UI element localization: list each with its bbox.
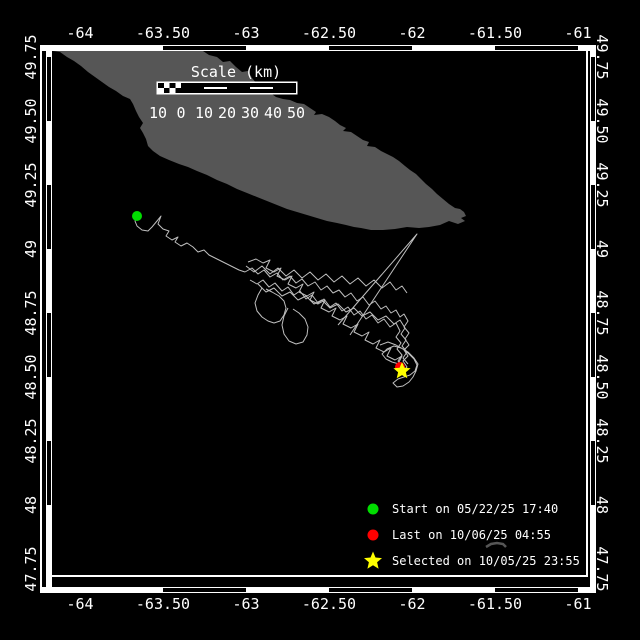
lat-tick-label-right: 49.25	[593, 162, 611, 207]
scalebar-segment	[181, 83, 204, 93]
start-position-marker[interactable]	[132, 211, 142, 221]
scalebar-checker-cell	[158, 88, 164, 93]
lat-tick-label-left: 48.50	[22, 354, 40, 399]
lat-tick-label-right: 49.50	[593, 98, 611, 143]
lon-tick-label-top: -64	[66, 24, 93, 42]
lat-tick-label-right: 49.75	[593, 34, 611, 79]
legend-label: Selected on 10/05/25 23:55	[392, 554, 580, 568]
track-line[interactable]	[255, 288, 286, 323]
lat-tick-label-left: 48	[22, 496, 40, 514]
lat-tick-label-right: 49	[593, 240, 611, 258]
lon-tick-label-top: -61	[564, 24, 591, 42]
scalebar-segment	[273, 83, 296, 93]
scalebar-tick-label: 10	[195, 104, 213, 122]
lat-tick-label-right: 48.50	[593, 354, 611, 399]
lon-tick-label-bottom: -61	[564, 595, 591, 613]
lat-tick-label-left: 49.75	[22, 34, 40, 79]
lat-tick-label-right: 47.75	[593, 546, 611, 591]
selected-legend-marker	[364, 552, 382, 569]
frame-band-segment	[47, 57, 51, 121]
frame-rail-right	[586, 47, 588, 577]
lat-tick-label-right: 48.75	[593, 290, 611, 335]
frame-band-segment	[329, 588, 412, 592]
frame-band-segment	[47, 313, 51, 377]
lat-tick-label-right: 48	[593, 496, 611, 514]
lon-tick-label-bottom: -62	[398, 595, 425, 613]
frame-band-segment	[163, 46, 246, 50]
scalebar-segment	[227, 83, 250, 93]
frame-band-segment	[47, 441, 51, 505]
frame-band-segment	[47, 185, 51, 249]
lon-tick-label-top: -63.50	[136, 24, 190, 42]
scalebar-tick-label: 40	[264, 104, 282, 122]
lon-tick-label-bottom: -63.50	[136, 595, 190, 613]
scalebar-checker-cell	[170, 88, 176, 93]
lat-tick-label-left: 49.50	[22, 98, 40, 143]
lat-tick-label-left: 47.75	[22, 546, 40, 591]
start-legend-marker	[368, 504, 379, 515]
scalebar-tick-label: 30	[241, 104, 259, 122]
map-canvas[interactable]: -64-64-63.50-63.50-63-63-62.50-62.50-62-…	[0, 0, 640, 640]
frame-band-segment	[495, 588, 578, 592]
scalebar-checker-cell	[164, 83, 170, 88]
frame-rail-left	[40, 45, 42, 593]
scalebar-tick-label: 10	[149, 104, 167, 122]
lat-tick-label-left: 49.25	[22, 162, 40, 207]
scalebar-tick-label: 50	[287, 104, 305, 122]
lon-tick-label-top: -62	[398, 24, 425, 42]
last-legend-marker	[368, 530, 379, 541]
lat-tick-label-left: 48.75	[22, 290, 40, 335]
drifter-track-map-screen: -64-64-63.50-63.50-63-63-62.50-62.50-62-…	[0, 0, 640, 640]
legend-label: Start on 05/22/25 17:40	[392, 502, 558, 516]
lon-tick-label-top: -63	[232, 24, 259, 42]
lat-tick-label-left: 49	[22, 240, 40, 258]
small-islet	[486, 543, 506, 547]
lon-tick-label-bottom: -61.50	[468, 595, 522, 613]
scalebar-title: Scale (km)	[191, 63, 281, 81]
scalebar-tick-label: 20	[218, 104, 236, 122]
lon-tick-label-top: -62.50	[302, 24, 356, 42]
lat-tick-label-left: 48.25	[22, 418, 40, 463]
legend-label: Last on 10/06/25 04:55	[392, 528, 551, 542]
lat-tick-label-right: 48.25	[593, 418, 611, 463]
track-line[interactable]	[282, 308, 308, 344]
scalebar-segment-stripe	[250, 87, 273, 89]
track-line[interactable]	[258, 284, 408, 364]
frame-band-segment	[495, 46, 578, 50]
track-line[interactable]	[135, 216, 245, 272]
scalebar-segment-stripe	[204, 87, 227, 89]
lon-tick-label-bottom: -64	[66, 595, 93, 613]
lon-tick-label-top: -61.50	[468, 24, 522, 42]
lon-tick-label-bottom: -62.50	[302, 595, 356, 613]
frame-rail-bottom	[50, 575, 587, 577]
lon-tick-label-bottom: -63	[232, 595, 259, 613]
scalebar-checker-cell	[175, 83, 181, 88]
frame-band-segment	[163, 588, 246, 592]
frame-band-segment	[329, 46, 412, 50]
scalebar-tick-label: 0	[176, 104, 185, 122]
